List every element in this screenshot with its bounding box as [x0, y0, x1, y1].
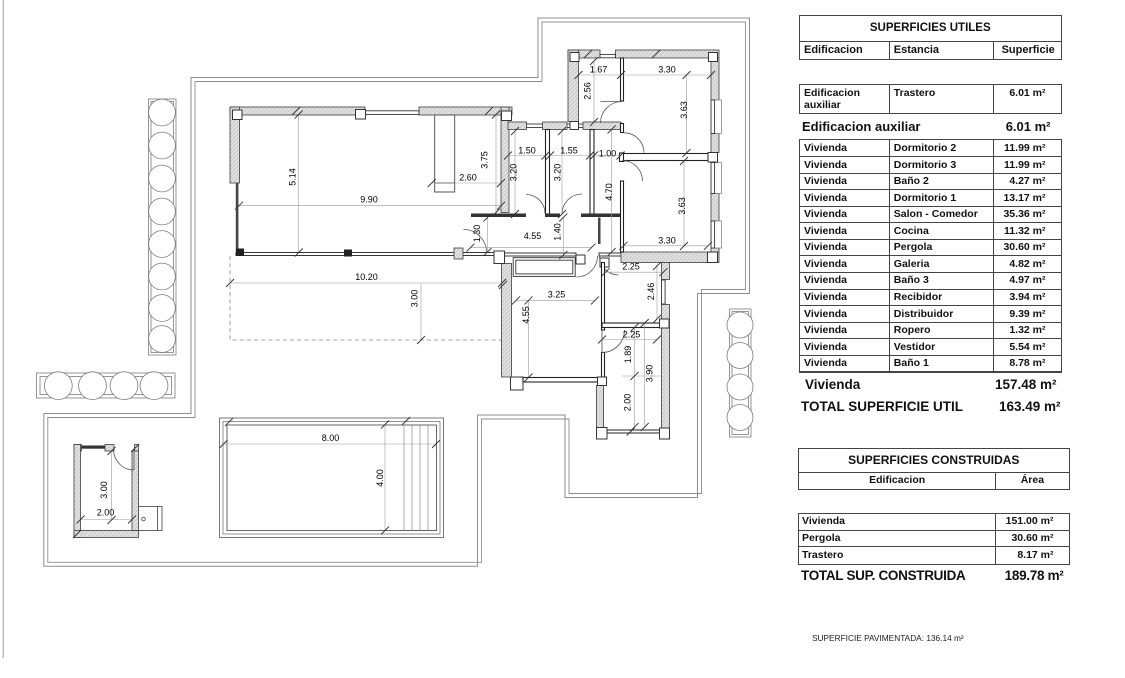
svg-text:1.89: 1.89 [623, 346, 633, 364]
svg-text:4.55: 4.55 [524, 231, 542, 241]
svg-text:3.63: 3.63 [677, 197, 687, 215]
svg-text:2.56: 2.56 [583, 82, 593, 100]
svg-text:4.70: 4.70 [604, 183, 614, 201]
svg-text:2.00: 2.00 [97, 508, 115, 518]
svg-text:1.30: 1.30 [472, 225, 482, 243]
svg-text:3.00: 3.00 [99, 481, 109, 499]
svg-text:2.25: 2.25 [622, 262, 640, 272]
svg-text:2.00: 2.00 [623, 394, 633, 412]
svg-text:8.00: 8.00 [322, 433, 340, 443]
svg-text:3.25: 3.25 [548, 290, 566, 300]
svg-text:3.90: 3.90 [645, 365, 655, 383]
svg-text:3.75: 3.75 [480, 151, 490, 169]
svg-text:2.60: 2.60 [459, 173, 477, 183]
svg-text:3.20: 3.20 [509, 164, 519, 182]
svg-text:3.30: 3.30 [658, 65, 676, 75]
svg-text:2.46: 2.46 [646, 283, 656, 301]
svg-text:1.67: 1.67 [590, 65, 608, 75]
svg-text:1.50: 1.50 [518, 146, 536, 156]
svg-text:3.30: 3.30 [658, 236, 676, 246]
svg-text:3.00: 3.00 [410, 290, 420, 308]
svg-text:10.20: 10.20 [355, 272, 378, 282]
svg-text:1.00: 1.00 [599, 149, 617, 159]
svg-text:2.25: 2.25 [623, 330, 641, 340]
svg-text:9.90: 9.90 [360, 195, 378, 205]
svg-text:3.20: 3.20 [553, 164, 563, 182]
svg-text:3.63: 3.63 [679, 101, 689, 119]
svg-text:1.55: 1.55 [560, 146, 578, 156]
svg-text:4.00: 4.00 [375, 469, 385, 487]
svg-text:1.40: 1.40 [553, 223, 563, 241]
svg-text:4.55: 4.55 [521, 306, 531, 324]
svg-text:5.14: 5.14 [288, 168, 298, 186]
